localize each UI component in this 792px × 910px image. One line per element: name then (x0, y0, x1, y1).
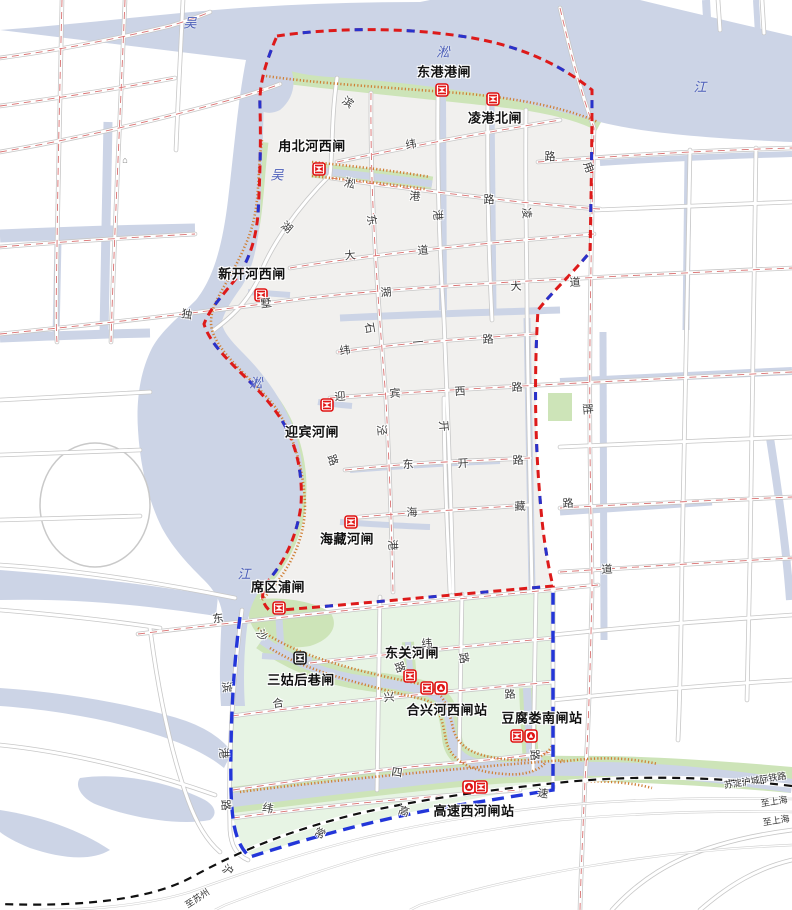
road-label: 纬 (404, 135, 418, 153)
destination-label: 至上海 (760, 792, 789, 809)
road-label: 合 (271, 694, 284, 711)
river-label: 淞 (249, 373, 262, 392)
road-label: 胜 (580, 403, 597, 415)
road-label: 宾 (389, 385, 401, 402)
road-label: 沪 (219, 860, 237, 879)
planning-map: 东港港闸凌港北闸甪北河西闸新开河西闸迎宾河闸海藏河闸席区浦闸三姑后巷闸东关河闸合… (0, 0, 792, 910)
gate-icon-glyph (344, 515, 358, 529)
gate-icon-glyph (312, 162, 326, 176)
gate-label: 凌港北闸 (468, 108, 522, 127)
road-label: 港 (430, 209, 447, 221)
road-label: 路 (504, 686, 516, 703)
gate-icon-glyph (320, 398, 334, 412)
destination-label: 至上海 (762, 811, 791, 828)
gate-icon[interactable] (312, 162, 326, 176)
gate-icon-glyph (510, 729, 524, 743)
pump-icon[interactable] (434, 681, 448, 695)
road-label: 藏 (514, 498, 526, 515)
gate-icon[interactable] (420, 681, 434, 695)
road-label: 滨 (339, 92, 357, 111)
road-label: 路 (218, 799, 235, 811)
road-label: 东 (363, 213, 381, 227)
road-label: 东 (211, 609, 224, 626)
gate-icon[interactable] (272, 601, 286, 615)
road-label: 道 (601, 561, 613, 578)
road-label: 四 (390, 763, 403, 780)
road-label: 开 (436, 420, 453, 432)
road-label: 西 (454, 383, 466, 400)
gate-label: 新开河西闸 (218, 264, 286, 283)
gate-label: 席区浦闸 (251, 577, 305, 596)
pump-icon-glyph (524, 729, 538, 743)
road-label: 甪 (580, 159, 599, 175)
gate-icon-glyph (403, 669, 417, 683)
gate-icon[interactable] (320, 398, 334, 412)
road-label: 港 (216, 747, 233, 759)
road-label: 港 (385, 539, 402, 551)
labels-layer: 东港港闸凌港北闸甪北河西闸新开河西闸迎宾河闸海藏河闸席区浦闸三姑后巷闸东关河闸合… (0, 0, 792, 910)
building-icon: ⌂ (122, 155, 127, 165)
road-label: 淞 (343, 174, 358, 192)
road-label: 常 (312, 823, 329, 842)
road-label: 道 (417, 242, 429, 259)
gate-icon[interactable] (293, 651, 307, 665)
road-label: 湖 (380, 284, 392, 301)
road-label: 纬 (338, 341, 351, 358)
road-label: 石 (361, 321, 379, 335)
river-label: 淞 (436, 42, 449, 61)
gate-icon[interactable] (344, 515, 358, 529)
road-label: 道 (569, 274, 581, 291)
road-label: 滨 (219, 681, 236, 693)
road-label: 独 (180, 305, 194, 323)
road-label: 路 (324, 452, 343, 468)
gate-label: 东港港闸 (417, 62, 471, 81)
road-label: 路 (482, 331, 494, 348)
river-label: 江 (237, 564, 250, 583)
gate-icon[interactable] (435, 83, 449, 97)
pump-icon-glyph (434, 681, 448, 695)
gate-icon-glyph (293, 651, 307, 665)
road-label: 纬 (261, 799, 275, 817)
road-label: 沙 (252, 626, 271, 644)
river-label: 吴 (183, 13, 196, 32)
gate-label: 合兴河西闸站 (406, 700, 487, 719)
road-label: 墅 (259, 294, 272, 311)
road-label: 海 (406, 504, 418, 521)
gate-icon[interactable] (474, 780, 488, 794)
road-label: 泾 (374, 424, 391, 436)
river-label: 吴 (270, 165, 283, 184)
road-label: 路 (545, 148, 556, 164)
road-label: 东 (402, 456, 414, 473)
road-label: 高 (396, 802, 411, 821)
gate-icon[interactable] (510, 729, 524, 743)
river-label: 江 (693, 77, 706, 96)
road-label: 路 (455, 651, 473, 665)
gate-icon[interactable] (403, 669, 417, 683)
gate-icon[interactable] (486, 92, 500, 106)
road-label: 凌 (519, 207, 536, 219)
gate-label: 豆腐娄南闸站 (501, 708, 582, 727)
railway-label: 苏淀沪城际铁路 (723, 769, 787, 792)
gate-label: 三姑后巷闸 (267, 670, 335, 689)
destination-label: 至苏州 (182, 885, 212, 910)
road-label: 港 (409, 188, 421, 205)
road-label: 迎 (334, 388, 346, 405)
road-label: 纬 (421, 635, 433, 652)
road-label: 大 (510, 278, 522, 295)
pump-icon[interactable] (524, 729, 538, 743)
gate-icon-glyph (486, 92, 500, 106)
road-label: 路 (484, 191, 495, 207)
gate-label: 海藏河闸 (320, 529, 374, 548)
gate-icon-glyph (272, 601, 286, 615)
road-label: 湖 (278, 217, 297, 236)
gate-icon-glyph (420, 681, 434, 695)
road-label: 路 (527, 749, 544, 761)
road-label: 路 (512, 452, 524, 469)
gate-icon-glyph (435, 83, 449, 97)
gate-label: 迎宾河闸 (285, 422, 339, 441)
road-label: 一 (412, 334, 424, 351)
road-label: 开 (457, 455, 469, 472)
gate-icon-glyph (474, 780, 488, 794)
road-label: 路 (511, 379, 523, 396)
road-label: 路 (562, 495, 574, 512)
gate-label: 高速西河闸站 (433, 801, 514, 820)
road-label: 速 (536, 784, 549, 801)
gate-label: 甪北河西闸 (278, 136, 346, 155)
road-label: 兴 (383, 689, 395, 706)
road-label: 大 (344, 247, 356, 264)
